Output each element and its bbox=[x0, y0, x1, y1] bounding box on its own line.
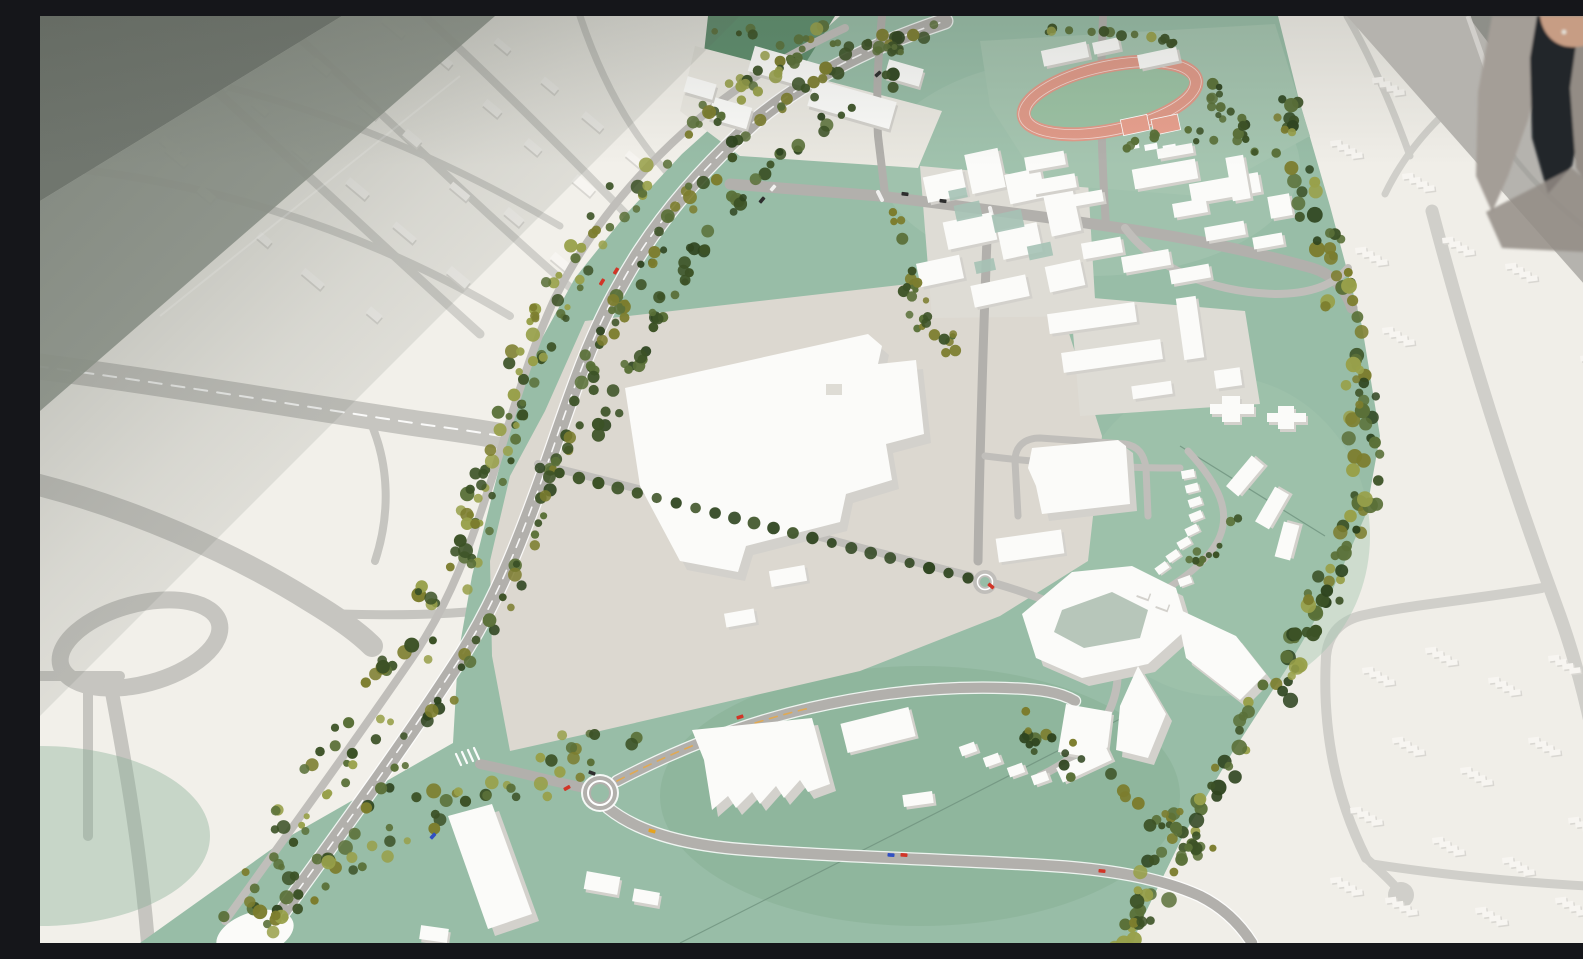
tree bbox=[301, 827, 309, 835]
tree bbox=[424, 655, 433, 664]
tree bbox=[540, 490, 551, 501]
tree bbox=[1199, 556, 1206, 563]
tree bbox=[653, 291, 665, 303]
tree bbox=[592, 429, 605, 442]
tree bbox=[483, 613, 497, 627]
tree bbox=[690, 503, 701, 514]
tree bbox=[637, 261, 644, 268]
tree bbox=[1347, 295, 1358, 306]
tree bbox=[1333, 525, 1347, 539]
top-light-falloff bbox=[40, 16, 1583, 166]
tree bbox=[1069, 739, 1077, 747]
tree bbox=[387, 718, 394, 725]
tree bbox=[592, 226, 601, 235]
tree bbox=[1192, 557, 1200, 565]
tree bbox=[470, 468, 482, 480]
tree bbox=[545, 754, 557, 766]
tree bbox=[606, 182, 614, 190]
tree bbox=[750, 173, 762, 185]
tree bbox=[1137, 916, 1148, 927]
tree bbox=[1232, 740, 1248, 756]
tree bbox=[671, 291, 680, 300]
tree bbox=[543, 470, 556, 483]
tree bbox=[292, 904, 303, 915]
tree bbox=[492, 406, 505, 419]
tree bbox=[516, 347, 525, 356]
office-block bbox=[1028, 440, 1130, 514]
tree bbox=[526, 328, 540, 342]
tree bbox=[518, 374, 529, 385]
car-body bbox=[887, 853, 894, 857]
tree bbox=[1303, 594, 1314, 605]
tree bbox=[1331, 551, 1340, 560]
warehouse-rooftop-unit bbox=[826, 384, 842, 395]
tree bbox=[1144, 819, 1157, 832]
tree bbox=[1341, 278, 1357, 294]
tree bbox=[467, 559, 477, 569]
big-roundabout bbox=[581, 774, 619, 812]
tree bbox=[404, 638, 419, 653]
tree bbox=[343, 717, 354, 728]
tree bbox=[367, 841, 378, 852]
tree bbox=[701, 225, 714, 238]
tree bbox=[499, 593, 507, 601]
tree bbox=[562, 443, 573, 454]
tree bbox=[615, 409, 623, 417]
tree bbox=[1355, 401, 1363, 409]
tree bbox=[576, 421, 584, 429]
tree bbox=[619, 212, 630, 223]
tree bbox=[624, 365, 633, 374]
tree bbox=[949, 330, 957, 338]
tree bbox=[575, 275, 585, 285]
tree bbox=[1344, 268, 1353, 277]
tree bbox=[906, 311, 914, 319]
tree bbox=[1295, 212, 1305, 222]
tree bbox=[642, 181, 652, 191]
tree bbox=[929, 329, 940, 340]
tree bbox=[660, 246, 667, 253]
tree bbox=[348, 760, 357, 769]
tree bbox=[341, 778, 350, 787]
tree bbox=[632, 487, 643, 498]
tree bbox=[575, 376, 589, 390]
tree bbox=[1211, 764, 1219, 772]
tree bbox=[612, 319, 620, 327]
tree bbox=[576, 243, 586, 253]
tree bbox=[1355, 366, 1364, 375]
tree bbox=[348, 865, 358, 875]
tree bbox=[347, 748, 358, 759]
tree bbox=[634, 350, 647, 363]
tree bbox=[1146, 916, 1155, 925]
tree bbox=[1312, 570, 1324, 582]
tree bbox=[551, 457, 561, 467]
tree bbox=[462, 584, 472, 594]
tree bbox=[1193, 547, 1202, 556]
tree bbox=[586, 361, 596, 371]
tree bbox=[1066, 772, 1076, 782]
tree bbox=[429, 636, 437, 644]
tree bbox=[806, 532, 818, 544]
tree bbox=[488, 492, 496, 500]
tree bbox=[510, 434, 521, 445]
tree bbox=[1344, 510, 1357, 523]
tree bbox=[897, 216, 905, 224]
tree bbox=[748, 517, 761, 530]
tree bbox=[390, 764, 398, 772]
tree bbox=[1258, 680, 1269, 691]
tree bbox=[1156, 847, 1167, 858]
tree bbox=[1194, 793, 1206, 805]
tree bbox=[570, 253, 580, 263]
tree bbox=[1209, 845, 1216, 852]
tree bbox=[562, 315, 569, 322]
tree bbox=[648, 246, 660, 258]
building bbox=[1214, 367, 1245, 392]
tree bbox=[923, 297, 929, 303]
tree bbox=[250, 884, 260, 894]
tree bbox=[1174, 828, 1183, 837]
tree bbox=[540, 512, 547, 519]
tree bbox=[446, 563, 455, 572]
tree bbox=[358, 862, 367, 871]
tree bbox=[506, 784, 515, 793]
tree bbox=[426, 783, 441, 798]
tree bbox=[649, 309, 657, 317]
tree bbox=[607, 294, 619, 306]
tree bbox=[376, 660, 390, 674]
tree bbox=[531, 314, 539, 322]
car bbox=[900, 853, 907, 857]
tree bbox=[1175, 853, 1188, 866]
tree bbox=[845, 542, 857, 554]
tree bbox=[686, 244, 694, 252]
tree bbox=[506, 413, 513, 420]
tree bbox=[1176, 808, 1183, 815]
car bbox=[939, 199, 946, 203]
tree bbox=[1228, 770, 1241, 783]
tree bbox=[1133, 865, 1147, 879]
tree bbox=[539, 353, 548, 362]
tree bbox=[683, 190, 697, 204]
tree bbox=[384, 836, 395, 847]
tree bbox=[552, 294, 564, 306]
tree bbox=[271, 911, 281, 921]
tree bbox=[1235, 726, 1244, 735]
tree bbox=[711, 174, 723, 186]
tree bbox=[415, 588, 422, 595]
tree bbox=[1031, 748, 1038, 755]
tree bbox=[573, 472, 585, 484]
tree bbox=[864, 547, 877, 560]
tree bbox=[827, 538, 837, 548]
tree bbox=[1324, 251, 1338, 265]
tree bbox=[699, 244, 710, 255]
tree bbox=[472, 636, 481, 645]
tree bbox=[322, 790, 331, 799]
tree bbox=[513, 422, 520, 429]
tree bbox=[905, 558, 915, 568]
tree bbox=[1061, 749, 1069, 757]
tree bbox=[1341, 380, 1352, 391]
model-photo-canvas bbox=[40, 16, 1583, 943]
tree bbox=[1158, 822, 1165, 829]
tree bbox=[608, 306, 616, 314]
tree bbox=[569, 396, 580, 407]
tree bbox=[346, 852, 357, 863]
tree bbox=[1373, 475, 1384, 486]
tree bbox=[950, 345, 962, 357]
tree bbox=[583, 265, 593, 275]
tree bbox=[622, 300, 629, 307]
tree bbox=[907, 291, 917, 301]
tree bbox=[1047, 733, 1056, 742]
tree bbox=[1211, 791, 1222, 802]
tree bbox=[567, 752, 580, 765]
tree bbox=[939, 334, 950, 345]
car-body bbox=[939, 199, 946, 203]
tree bbox=[728, 512, 741, 525]
tree bbox=[587, 371, 599, 383]
tree bbox=[425, 704, 439, 718]
tree bbox=[330, 740, 341, 751]
tree bbox=[1224, 762, 1233, 771]
tree bbox=[652, 493, 662, 503]
tree bbox=[267, 926, 280, 939]
tree bbox=[271, 825, 279, 833]
small-roundabout bbox=[973, 570, 997, 594]
tree bbox=[611, 482, 624, 495]
tree bbox=[636, 279, 647, 290]
tree bbox=[470, 519, 480, 529]
tree bbox=[678, 265, 689, 276]
tree bbox=[598, 240, 607, 249]
tree bbox=[908, 267, 917, 276]
tree bbox=[1359, 417, 1372, 430]
tree bbox=[299, 764, 309, 774]
tree bbox=[685, 183, 692, 190]
tree bbox=[271, 806, 281, 816]
tree bbox=[361, 802, 372, 813]
tree bbox=[1325, 228, 1335, 238]
tree bbox=[1335, 597, 1343, 605]
car-body bbox=[900, 853, 907, 857]
tree bbox=[1217, 543, 1223, 549]
tree bbox=[1321, 585, 1333, 597]
tree bbox=[1206, 552, 1212, 558]
tree bbox=[269, 852, 279, 862]
tree bbox=[943, 568, 953, 578]
tree bbox=[1130, 894, 1145, 909]
tree bbox=[440, 794, 453, 807]
tree bbox=[1320, 301, 1330, 311]
tree bbox=[787, 527, 799, 539]
tree bbox=[1331, 270, 1342, 281]
tree bbox=[576, 773, 585, 782]
tree bbox=[381, 850, 393, 862]
tree bbox=[1161, 810, 1169, 818]
car-body bbox=[901, 192, 908, 196]
tree bbox=[466, 485, 475, 494]
tree bbox=[507, 604, 515, 612]
tree bbox=[517, 580, 527, 590]
tree bbox=[1356, 453, 1370, 467]
ring bbox=[1562, 30, 1567, 35]
tree bbox=[671, 497, 682, 508]
tree bbox=[607, 384, 620, 397]
tree bbox=[535, 463, 546, 474]
tree bbox=[896, 233, 908, 245]
tree bbox=[555, 272, 562, 279]
tree bbox=[564, 239, 577, 252]
tree bbox=[1280, 650, 1293, 663]
tree bbox=[1346, 463, 1360, 477]
car-body bbox=[1098, 869, 1105, 873]
tree bbox=[767, 522, 780, 535]
tree bbox=[531, 530, 539, 538]
tree bbox=[587, 759, 595, 767]
tree bbox=[411, 792, 421, 802]
tree bbox=[402, 762, 409, 769]
tree bbox=[921, 318, 931, 328]
tree bbox=[376, 715, 385, 724]
tree bbox=[697, 176, 710, 189]
tree bbox=[1313, 236, 1322, 245]
tree bbox=[1078, 755, 1086, 763]
scale-model-photo: Urban planning scale model with white bu… bbox=[40, 16, 1583, 943]
tree bbox=[400, 732, 408, 740]
tree bbox=[218, 911, 229, 922]
tree bbox=[1189, 813, 1204, 828]
tree bbox=[474, 494, 483, 503]
tree bbox=[889, 208, 897, 216]
tree bbox=[375, 782, 387, 794]
tree bbox=[507, 457, 514, 464]
tree bbox=[1026, 741, 1034, 749]
tree bbox=[1357, 491, 1373, 507]
tree bbox=[661, 209, 675, 223]
tree bbox=[1242, 705, 1255, 718]
tree bbox=[458, 663, 466, 671]
tree bbox=[557, 730, 567, 740]
tree bbox=[482, 791, 491, 800]
tree bbox=[587, 212, 595, 220]
tree bbox=[625, 738, 638, 751]
tree bbox=[485, 454, 499, 468]
tree bbox=[597, 335, 608, 346]
building-roof bbox=[1267, 193, 1292, 218]
building-roof bbox=[1214, 367, 1242, 388]
tree bbox=[1352, 311, 1364, 323]
tree bbox=[554, 766, 565, 777]
tree bbox=[580, 349, 591, 360]
tree bbox=[1305, 165, 1314, 174]
tree bbox=[1291, 196, 1305, 210]
tree bbox=[529, 304, 537, 312]
tree bbox=[476, 480, 487, 491]
tree bbox=[1288, 672, 1296, 680]
tree bbox=[293, 889, 303, 899]
tree bbox=[321, 855, 335, 869]
tree bbox=[566, 742, 577, 753]
tree bbox=[589, 385, 599, 395]
tree bbox=[1207, 782, 1215, 790]
tree bbox=[1352, 526, 1360, 534]
tree bbox=[670, 201, 680, 211]
tree bbox=[1105, 768, 1117, 780]
tree bbox=[290, 871, 299, 880]
tree bbox=[529, 377, 539, 387]
tree bbox=[310, 896, 318, 904]
tree bbox=[1335, 564, 1348, 577]
tree bbox=[709, 507, 721, 519]
tree bbox=[689, 205, 697, 213]
tree bbox=[1120, 791, 1131, 802]
tree bbox=[536, 753, 546, 763]
tree bbox=[1310, 625, 1323, 638]
car bbox=[901, 192, 908, 196]
tree bbox=[361, 677, 371, 687]
tree bbox=[513, 561, 520, 568]
tree bbox=[499, 478, 507, 486]
tree bbox=[1184, 843, 1193, 852]
tree bbox=[1277, 686, 1288, 697]
tree bbox=[962, 572, 973, 583]
tree bbox=[528, 356, 538, 366]
tree bbox=[520, 400, 527, 407]
tree bbox=[554, 468, 565, 479]
tree bbox=[941, 348, 950, 357]
tree bbox=[315, 747, 325, 757]
tree bbox=[464, 656, 476, 668]
tree bbox=[1287, 174, 1302, 189]
tree bbox=[1059, 760, 1070, 771]
tree bbox=[564, 431, 576, 443]
tree bbox=[903, 283, 911, 291]
tree bbox=[424, 592, 437, 605]
tree bbox=[1369, 437, 1381, 449]
tree bbox=[596, 327, 605, 336]
tree bbox=[534, 519, 542, 527]
tree bbox=[485, 444, 497, 456]
tree bbox=[1325, 564, 1335, 574]
tree bbox=[253, 905, 268, 920]
tree bbox=[371, 734, 381, 744]
tree bbox=[530, 540, 540, 550]
tree bbox=[541, 277, 551, 287]
tree bbox=[289, 838, 298, 847]
tree bbox=[349, 828, 361, 840]
tree bbox=[884, 552, 896, 564]
tree bbox=[1132, 797, 1145, 810]
tree bbox=[1307, 207, 1323, 223]
car bbox=[887, 853, 894, 857]
car bbox=[1098, 869, 1105, 873]
tree bbox=[503, 446, 513, 456]
tree bbox=[1234, 514, 1242, 522]
tree bbox=[890, 218, 897, 225]
tree bbox=[1289, 627, 1302, 640]
tree bbox=[244, 896, 255, 907]
tree bbox=[1213, 551, 1220, 558]
tree bbox=[1297, 186, 1308, 197]
tree bbox=[601, 407, 611, 417]
tree bbox=[1372, 392, 1380, 400]
tree bbox=[512, 793, 521, 802]
tree bbox=[633, 205, 641, 213]
tree bbox=[516, 368, 523, 375]
